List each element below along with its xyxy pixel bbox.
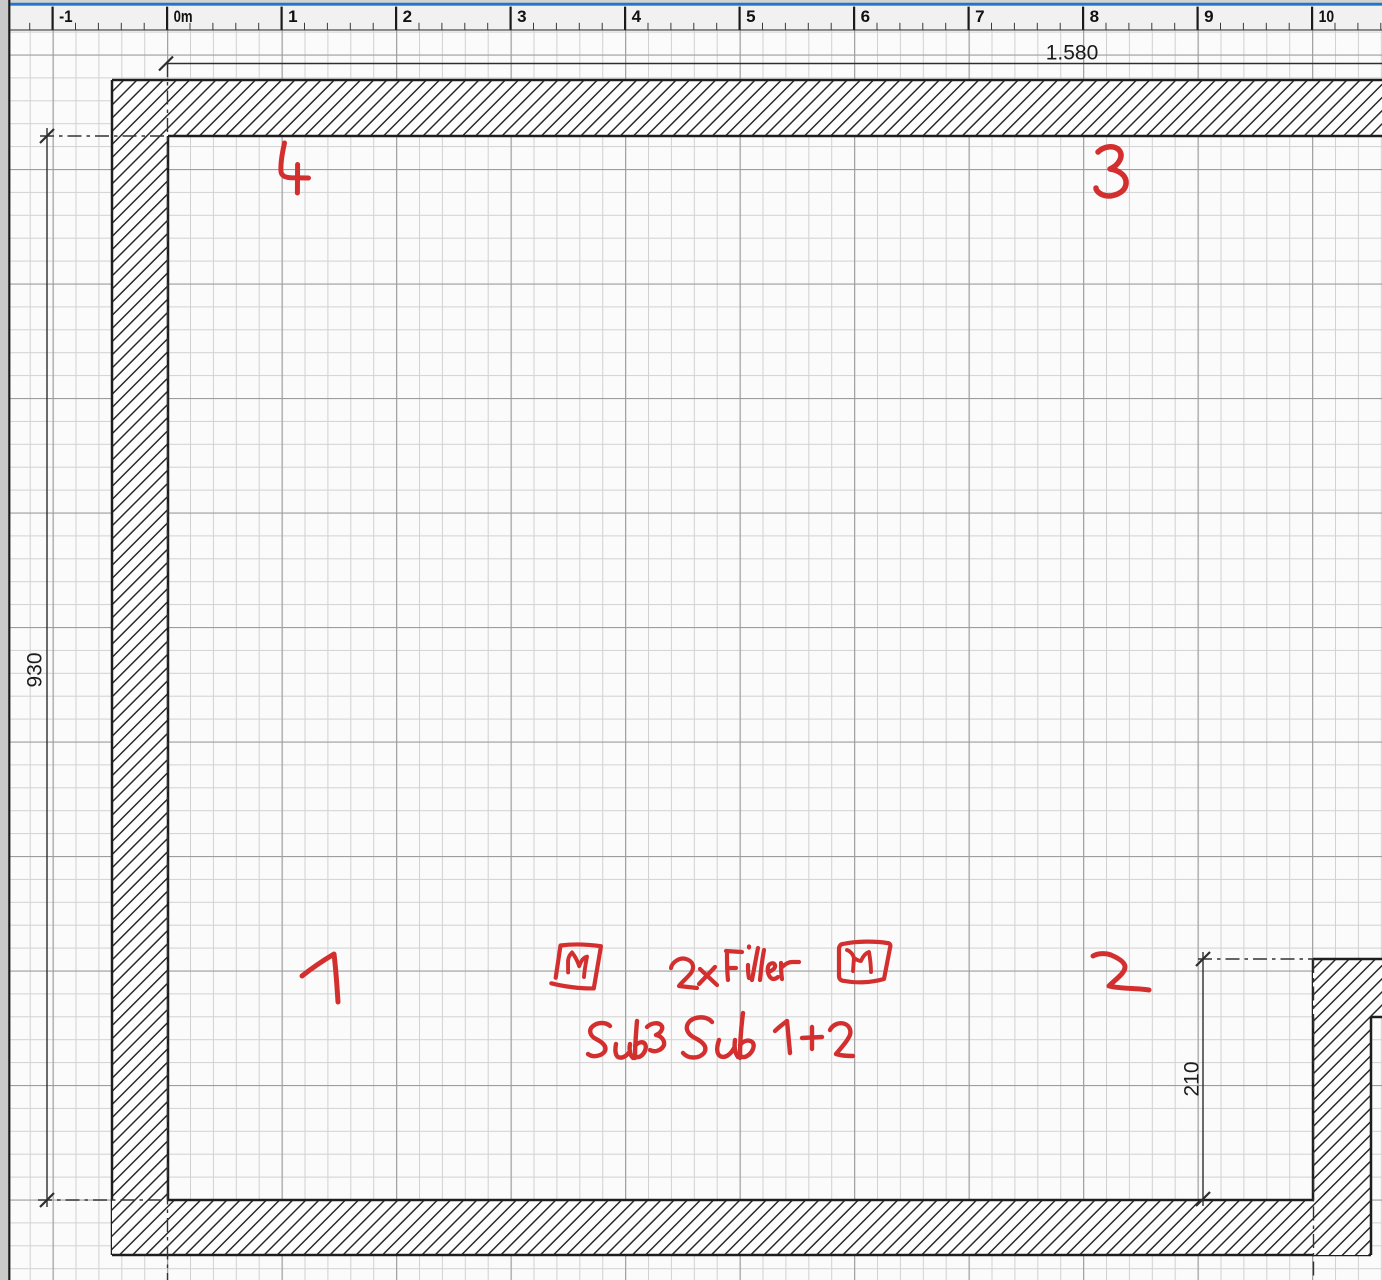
svg-text:7: 7 [975,7,984,26]
svg-text:1.580: 1.580 [1046,42,1099,65]
svg-text:0m: 0m [174,7,193,26]
svg-text:9: 9 [1204,7,1213,26]
svg-text:-1: -1 [59,7,73,26]
svg-text:6: 6 [861,7,870,26]
svg-text:4: 4 [632,7,642,26]
svg-text:10: 10 [1319,7,1335,26]
svg-text:8: 8 [1090,7,1099,26]
svg-text:5: 5 [746,7,755,26]
svg-text:2: 2 [403,7,412,26]
svg-text:3: 3 [517,7,526,26]
svg-text:1: 1 [288,7,297,26]
svg-text:930: 930 [24,652,47,687]
svg-text:210: 210 [1181,1061,1204,1096]
